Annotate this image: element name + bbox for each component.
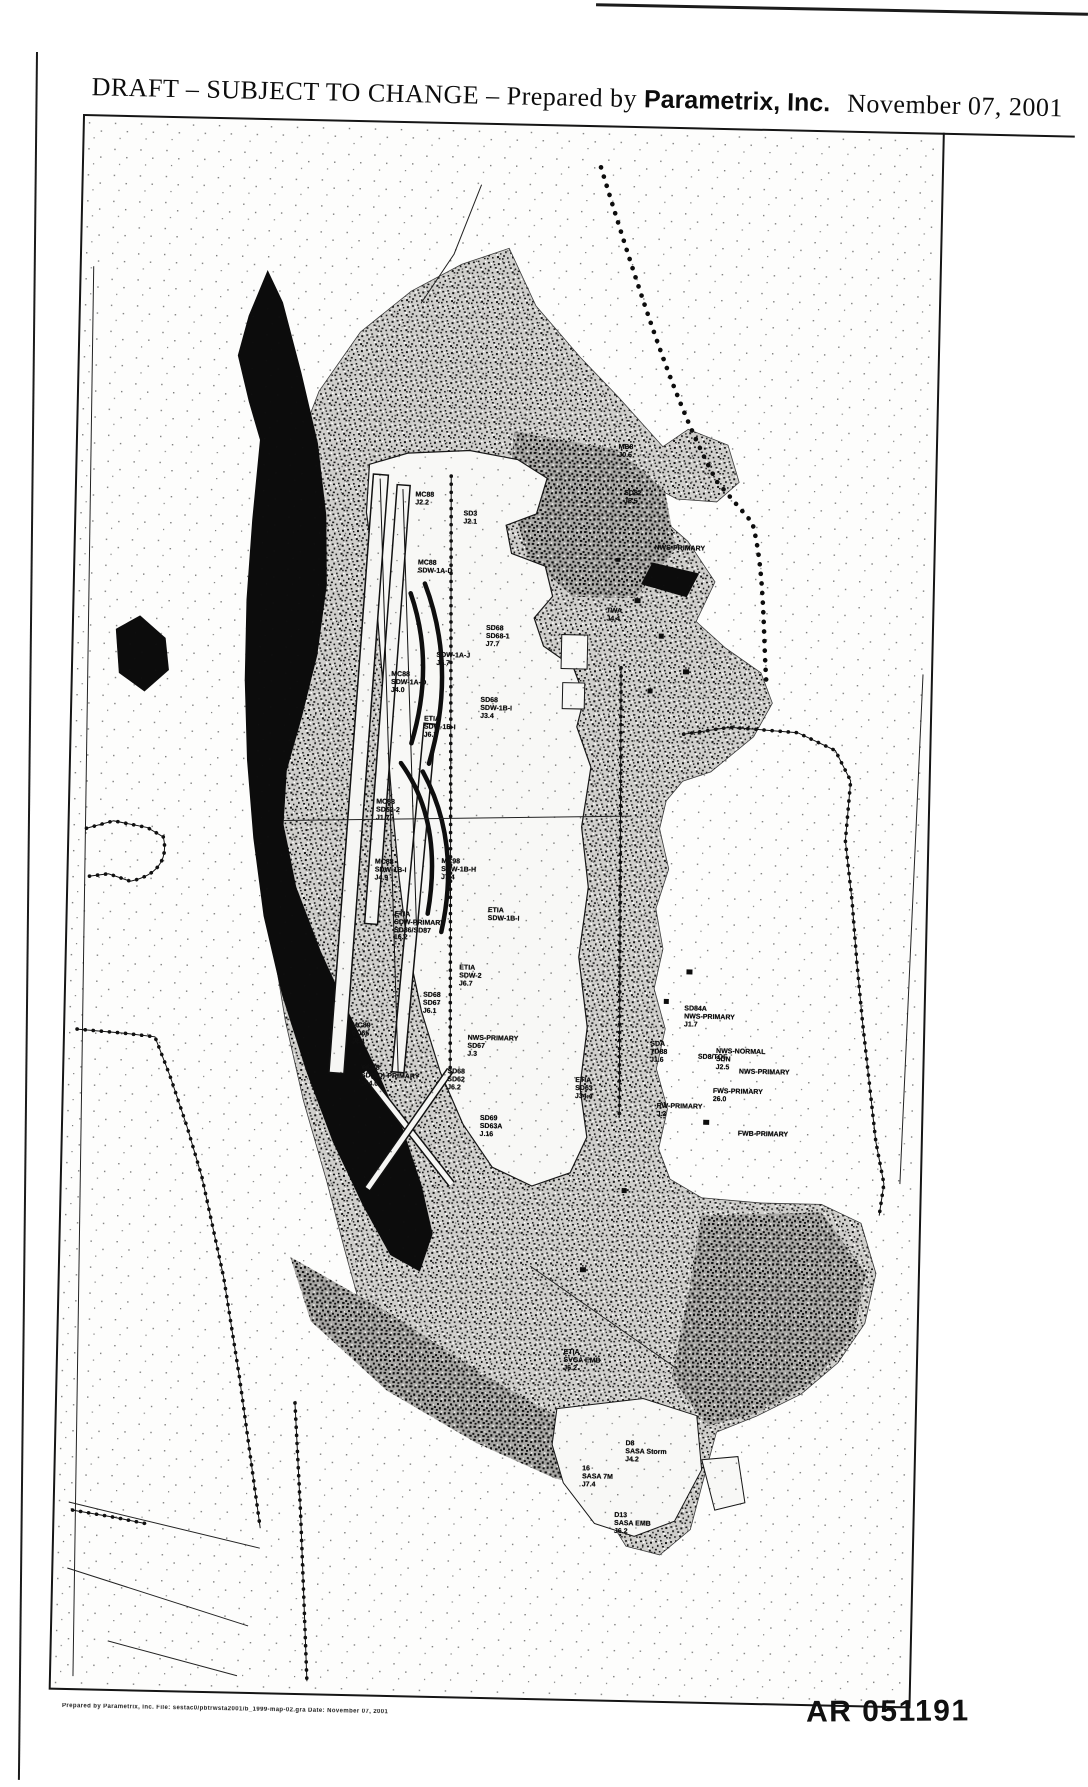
map-label: MC89 SD65 J6.1 (351, 1022, 370, 1046)
scan-edge-line-top (596, 3, 1088, 15)
page-content: DRAFT – SUBJECT TO CHANGE – Prepared by … (48, 70, 1084, 1751)
map-label: NWS-PRIMARY (654, 545, 705, 554)
map-label: NWS-PRIMARY SD67 J.3 (467, 1035, 518, 1060)
company-name: Parametrix, Inc. (644, 85, 831, 117)
map-label: MB8 J0.5 (618, 444, 633, 460)
map-label: RW-PRIMARY J.2 (656, 1103, 702, 1120)
scanned-page: { "page": { "header": { "draft_text": "D… (0, 0, 1088, 1787)
map-label: SD68 SD68-1 J7.7 (486, 625, 510, 649)
map-frame: MC88 SDW-1A-DMC88 J2.2SD3 J2.1SD68 SD68-… (49, 114, 945, 1708)
map-label: SD69 SD63A J.16 (479, 1115, 502, 1139)
map-label: MC88 SDW-1A-D (418, 559, 453, 575)
map-label: MC88 SD(SD)-PRIMARY J44.0 (361, 1064, 420, 1089)
map-label: MC88 SDW-1A-O J4.0 (391, 671, 427, 695)
map-label: FWS-PRIMARY 26.0 (713, 1088, 763, 1105)
map-label: MC98 SDW-1B-H J7.4 (441, 858, 476, 882)
map-label: ETIA SDW-1B-I (488, 907, 520, 923)
frame-extension-line (943, 133, 1075, 138)
map-label: MC88 SDW-1B-I J4.9 (374, 859, 406, 883)
map-label: SDW-1A-J J5.7 (436, 652, 470, 668)
map-label: ETIA SVGA EMB J6.2 (563, 1349, 601, 1373)
map-label: ETIA SDW-PRIMARY SD86/SD87 16.2 (394, 911, 445, 943)
map-label: ETIA SD63 J34.4 (575, 1077, 593, 1101)
map-label: MC88 SD62-2 J1.7 (376, 799, 400, 823)
header-date: November 07, 2001 (847, 89, 1063, 123)
map-label: SD8/TOF (698, 1054, 728, 1062)
map-label: SD3 J2.1 (463, 510, 477, 526)
map-label: TWA J4.4 (606, 608, 622, 624)
map-label: D8 SASA Storm J4.2 (625, 1440, 667, 1464)
map-label: ETIA SDW-2 J6.7 (459, 964, 482, 988)
page-title: DRAFT – SUBJECT TO CHANGE – Prepared by … (91, 72, 1063, 123)
map-label: NWS-PRIMARY (739, 1069, 790, 1078)
map-label: MC88 J2.2 (415, 491, 434, 507)
map-label: SD82 J5.5 (624, 490, 642, 506)
map-label: FWB-PRIMARY (738, 1131, 788, 1140)
scan-edge-line-left (18, 52, 38, 1780)
map-label: 16 SASA 7M J7.4 (582, 1465, 613, 1489)
map-label: D13 SASA EMB J6.2 (614, 1512, 651, 1536)
map-label: SD68 SDW-1B-I J3.4 (480, 697, 512, 721)
ar-number-stamp: AR 051191 (806, 1696, 970, 1727)
draft-notice: DRAFT – SUBJECT TO CHANGE – Prepared by (91, 72, 637, 113)
map-label: SD84A NWS-PRIMARY J1.7 (684, 1005, 735, 1030)
map-label: SDA TD88 J1.6 (650, 1041, 668, 1065)
map-label: SD68 SD67 J6.1 (423, 992, 441, 1016)
map-area: MC88 SDW-1A-DMC88 J2.2SD3 J2.1SD68 SD68-… (51, 116, 943, 1706)
map-label: ETIA SDW-1B-I J6.7 (424, 716, 456, 740)
map-label: SD68 SD62 J6.2 (447, 1068, 465, 1092)
